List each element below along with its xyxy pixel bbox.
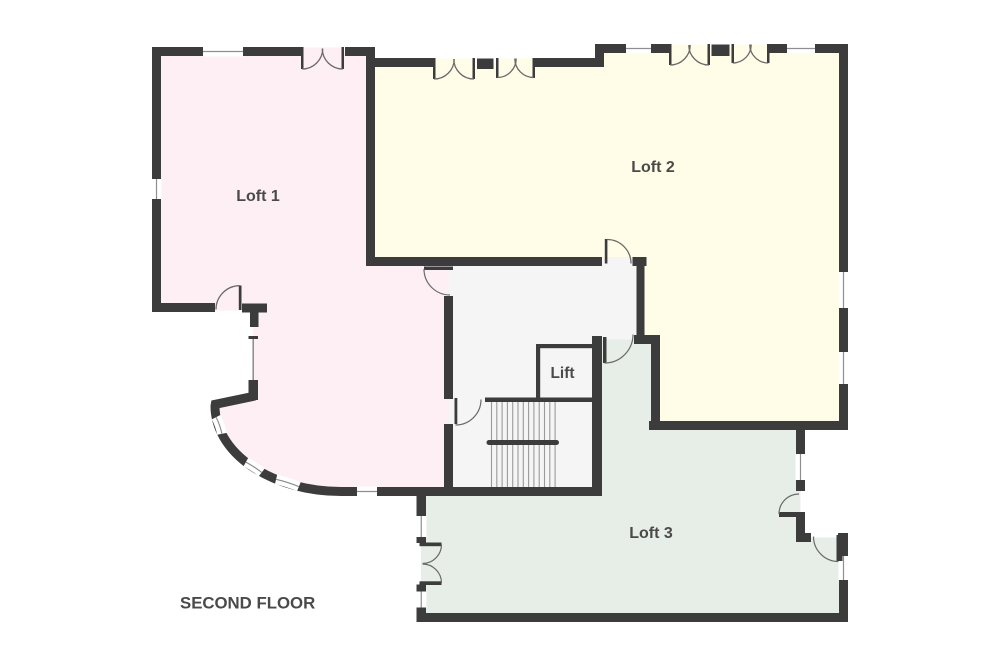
svg-text:SECOND FLOOR: SECOND FLOOR bbox=[180, 594, 315, 613]
svg-text:Loft 1: Loft 1 bbox=[236, 188, 280, 205]
svg-text:Loft 2: Loft 2 bbox=[631, 159, 675, 176]
svg-text:Lift: Lift bbox=[551, 365, 575, 382]
svg-text:Loft 3: Loft 3 bbox=[629, 525, 673, 542]
